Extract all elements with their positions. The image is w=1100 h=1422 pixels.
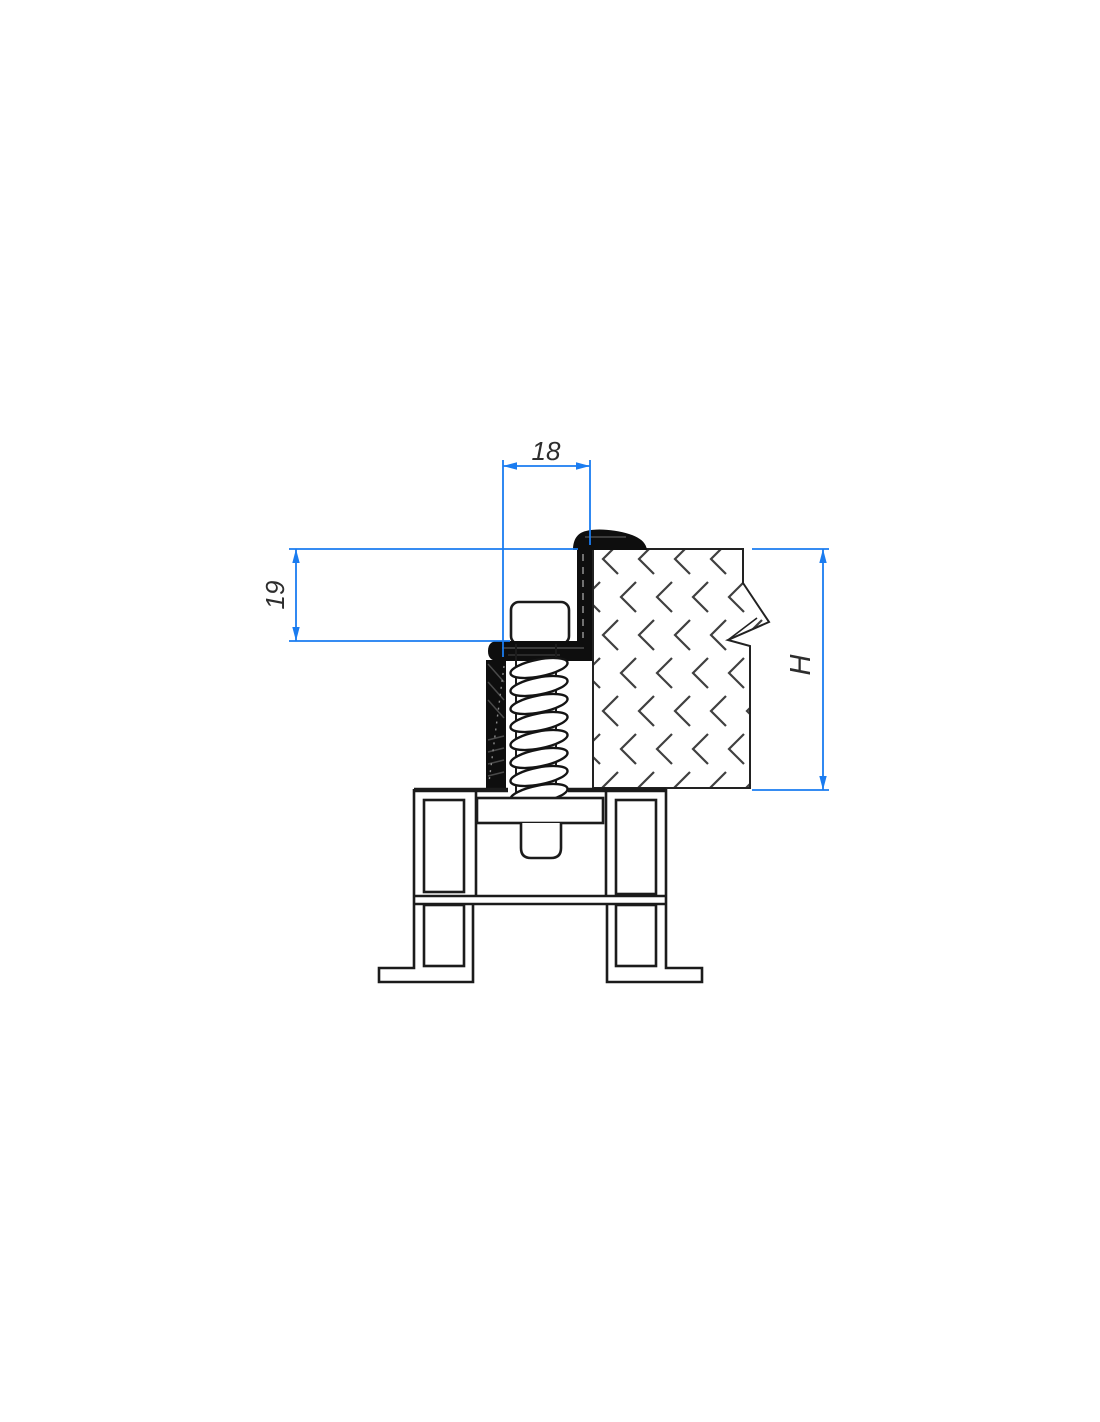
adjustment-screw-head (511, 602, 569, 644)
compression-spring (509, 654, 569, 808)
seal-vertical-lip (577, 549, 592, 644)
screw-nut-tip (521, 823, 561, 858)
technical-drawing: 18 19 H (0, 0, 1100, 1422)
dimH-label: H (785, 654, 817, 675)
carrier-nut-plate (477, 798, 603, 823)
seal-section-strip (486, 660, 506, 788)
door-panel (593, 549, 769, 788)
panel-hatch (593, 549, 769, 788)
dim18-label: 18 (532, 436, 561, 466)
drawing-canvas: 18 19 H (0, 0, 1100, 1422)
dim19-label: 19 (260, 581, 290, 610)
